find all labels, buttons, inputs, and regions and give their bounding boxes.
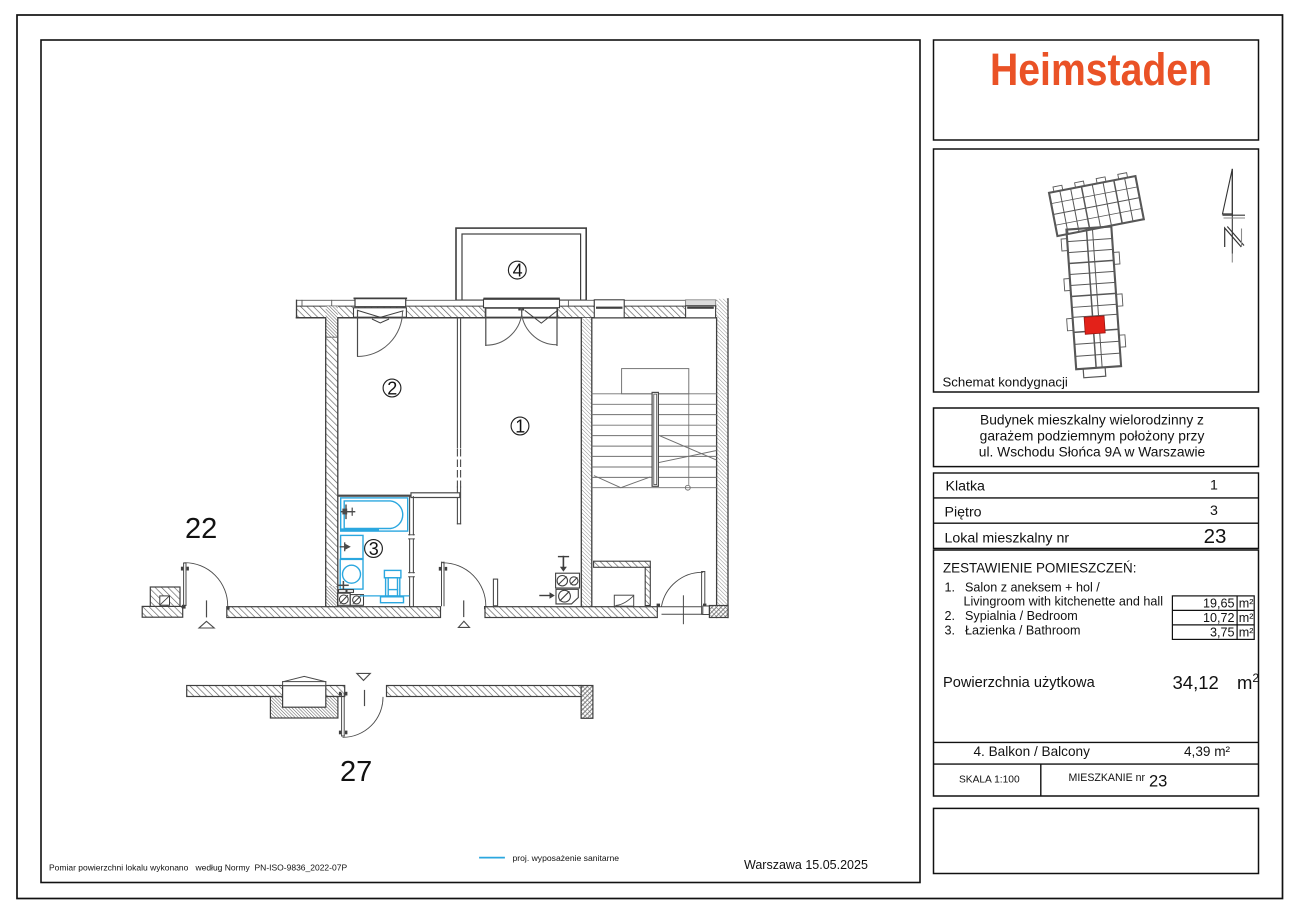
- svg-text:garażem podziemnym położony pr: garażem podziemnym położony przy: [980, 429, 1205, 444]
- svg-text:Piętro: Piętro: [945, 505, 982, 521]
- svg-text:Lokal mieszkalny nr: Lokal mieszkalny nr: [945, 531, 1070, 547]
- svg-text:m²: m²: [1239, 625, 1254, 639]
- svg-text:2: 2: [387, 379, 397, 399]
- svg-text:3.: 3.: [945, 623, 956, 637]
- svg-text:Salon z aneksem + hol /: Salon z aneksem + hol /: [965, 581, 1100, 595]
- svg-text:Budynek mieszkalny wielorodzin: Budynek mieszkalny wielorodzinny z: [980, 413, 1204, 428]
- svg-text:Pomiar powierzchni lokalu wyko: Pomiar powierzchni lokalu wykonano wedłu…: [49, 863, 347, 873]
- svg-text:4: 4: [513, 261, 523, 281]
- svg-text:m²: m²: [1239, 611, 1254, 625]
- svg-text:27: 27: [340, 756, 372, 788]
- svg-text:23: 23: [1149, 773, 1167, 791]
- svg-text:Łazienka / Bathroom: Łazienka / Bathroom: [965, 623, 1081, 637]
- svg-text:10,72: 10,72: [1203, 611, 1235, 625]
- svg-text:22: 22: [185, 513, 217, 545]
- svg-text:3: 3: [369, 539, 379, 559]
- svg-text:1: 1: [1210, 478, 1218, 494]
- svg-text:23: 23: [1204, 525, 1227, 548]
- svg-text:Schemat kondygnacji: Schemat kondygnacji: [943, 375, 1068, 390]
- svg-text:Powierzchnia użytkowa: Powierzchnia użytkowa: [943, 675, 1096, 691]
- svg-text:4. Balkon / Balcony: 4. Balkon / Balcony: [974, 744, 1091, 759]
- svg-text:2.: 2.: [945, 609, 956, 623]
- svg-text:3,75: 3,75: [1210, 625, 1235, 639]
- svg-text:Sypialnia / Bedroom: Sypialnia / Bedroom: [965, 609, 1078, 623]
- svg-text:proj. wyposażenie sanitarne: proj. wyposażenie sanitarne: [513, 853, 620, 863]
- svg-text:SKALA 1:100: SKALA 1:100: [959, 774, 1020, 785]
- svg-text:MIESZKANIE nr: MIESZKANIE nr: [1069, 772, 1146, 784]
- svg-text:ZESTAWIENIE POMIESZCZEŃ:: ZESTAWIENIE POMIESZCZEŃ:: [943, 561, 1136, 576]
- svg-text:19,65: 19,65: [1203, 596, 1235, 610]
- svg-text:3: 3: [1210, 503, 1218, 519]
- svg-text:Warszawa 15.05.2025: Warszawa 15.05.2025: [744, 858, 868, 872]
- svg-text:ul. Wschodu Słońca 9A w Warsza: ul. Wschodu Słońca 9A w Warszawie: [979, 445, 1206, 460]
- svg-text:1.: 1.: [945, 581, 956, 595]
- svg-text:34,12: 34,12: [1173, 672, 1219, 693]
- svg-text:m²: m²: [1239, 596, 1254, 610]
- svg-text:1: 1: [515, 417, 525, 437]
- svg-text:Klatka: Klatka: [946, 479, 986, 495]
- svg-text:4,39 m²: 4,39 m²: [1184, 744, 1231, 759]
- svg-text:m2: m2: [1237, 671, 1259, 693]
- svg-text:Livingroom with kitchenette an: Livingroom with kitchenette and hall: [964, 594, 1164, 608]
- svg-text:Heimstaden: Heimstaden: [990, 44, 1212, 95]
